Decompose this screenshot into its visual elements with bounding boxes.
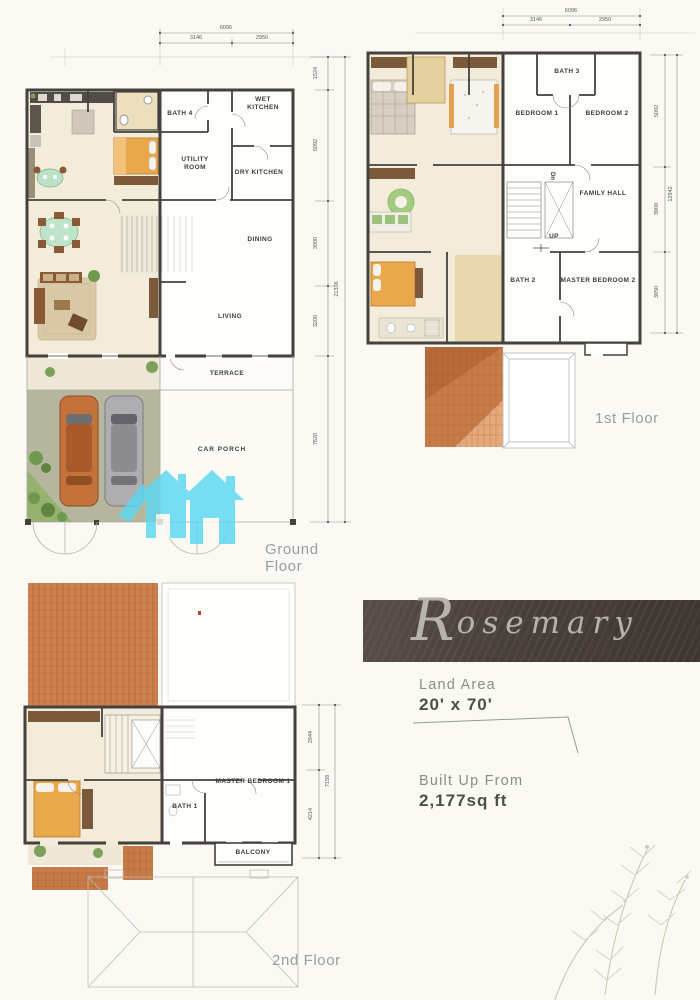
- room-label-master-bedroom-2: MASTER BEDROOM 2: [560, 277, 635, 285]
- roof-plain: [162, 583, 295, 707]
- property-name-rest: osemary: [457, 605, 639, 641]
- land-area-value: 20' x 70': [419, 695, 493, 715]
- dim-first-width-total: 6096: [565, 8, 577, 14]
- brochure-page: BATH 4 WET KITCHEN UTILITY ROOM DRY KITC…: [0, 0, 700, 1000]
- dim-first-h3: 3950: [654, 286, 660, 298]
- dim-ground-h1: 1524: [313, 67, 319, 79]
- bathroom-mirror: [116, 92, 158, 130]
- dim-second-height-total: 7158: [325, 775, 331, 787]
- dim-ground-width-left: 3146: [190, 35, 202, 41]
- first-floor-drawing: [355, 0, 700, 460]
- dimension-lines: [302, 705, 341, 858]
- name-banner: Rosemary: [363, 600, 700, 662]
- dim-ground-width-total: 6096: [220, 25, 232, 31]
- room-label-car-porch: CAR PORCH: [198, 446, 246, 454]
- dim-first-width-left: 3146: [530, 17, 542, 23]
- room-label-bath-2: BATH 2: [510, 277, 535, 285]
- dim-second-h1: 2944: [308, 731, 314, 743]
- room-label-dining: DINING: [247, 236, 272, 244]
- stair-hall-floor: [455, 255, 503, 343]
- room-label-master-bedroom-1: MASTER BEDROOM 1: [215, 778, 290, 786]
- ground-floor-caption: Ground Floor: [265, 541, 355, 575]
- room-label-dry-kitchen: DRY KITCHEN: [235, 169, 283, 177]
- roof-tiled: [28, 583, 158, 707]
- stairs-label-up: UP: [549, 233, 559, 241]
- dim-first-h2: 3900: [654, 203, 660, 215]
- porch-roof-tiled: [425, 347, 503, 447]
- dining-set: [38, 212, 80, 253]
- first-floor-caption: 1st Floor: [595, 410, 659, 427]
- dim-ground-width-right: 2950: [256, 35, 268, 41]
- right-unit-floor: [162, 707, 295, 843]
- dim-ground-h3: 3900: [313, 237, 319, 249]
- bay-window: [585, 343, 627, 355]
- room-label-utility-room: UTILITY ROOM: [172, 156, 218, 173]
- property-name-script: Rosemary: [411, 586, 639, 654]
- ground-floor-drawing: [10, 20, 355, 565]
- room-label-bedroom-2: BEDROOM 2: [586, 110, 629, 118]
- grid-lines: [415, 8, 695, 40]
- porch-roof-outline: [503, 353, 575, 448]
- rosemary-sprig-art: [555, 845, 691, 1000]
- car-orange: [60, 396, 98, 506]
- car-silver: [105, 396, 143, 506]
- second-floor-drawing: [10, 575, 355, 1000]
- room-label-bath-1: BATH 1: [172, 803, 197, 811]
- built-up-value: 2,177sq ft: [419, 791, 507, 811]
- room-label-bath-3: BATH 3: [554, 68, 579, 76]
- property-info-panel: Rosemary Land Area 20' x 70': [355, 595, 700, 1000]
- room-label-bath-4: BATH 4: [167, 110, 192, 118]
- dim-ground-h2: 5092: [313, 139, 319, 151]
- dim-ground-h4: 3200: [313, 315, 319, 327]
- ground-floor-plan: BATH 4 WET KITCHEN UTILITY ROOM DRY KITC…: [10, 20, 355, 565]
- room-label-wet-kitchen: WET KITCHEN: [240, 96, 286, 113]
- dim-first-h1: 5092: [654, 105, 660, 117]
- room-label-balcony: BALCONY: [236, 849, 271, 857]
- room-label-terrace: TERRACE: [210, 370, 244, 378]
- dim-ground-h5: 7620: [313, 433, 319, 445]
- dim-second-h2: 4214: [308, 808, 314, 820]
- grid-lines: [50, 48, 348, 66]
- room-label-bedroom-1: BEDROOM 1: [516, 110, 559, 118]
- property-name-initial: R: [411, 586, 457, 654]
- land-area-label: Land Area: [419, 677, 496, 693]
- dim-ground-height-total: 21336: [334, 281, 340, 296]
- room-label-living: LIVING: [218, 313, 242, 321]
- stairs-label-down: Dn: [549, 172, 555, 180]
- room-label-family-hall: FAMILY HALL: [580, 190, 627, 198]
- dim-first-height-total: 12942: [668, 186, 674, 201]
- first-floor-plan: BATH 3 BEDROOM 1 BEDROOM 2 FAMILY HALL D…: [355, 0, 700, 460]
- dim-first-width-right: 2950: [599, 17, 611, 23]
- hip-roof-outline: [88, 870, 298, 987]
- second-floor-plan: MASTER BEDROOM 1 BATH 1 BALCONY 2944 421…: [10, 575, 355, 1000]
- second-floor-caption: 2nd Floor: [272, 952, 341, 969]
- built-up-label: Built Up From: [419, 773, 523, 789]
